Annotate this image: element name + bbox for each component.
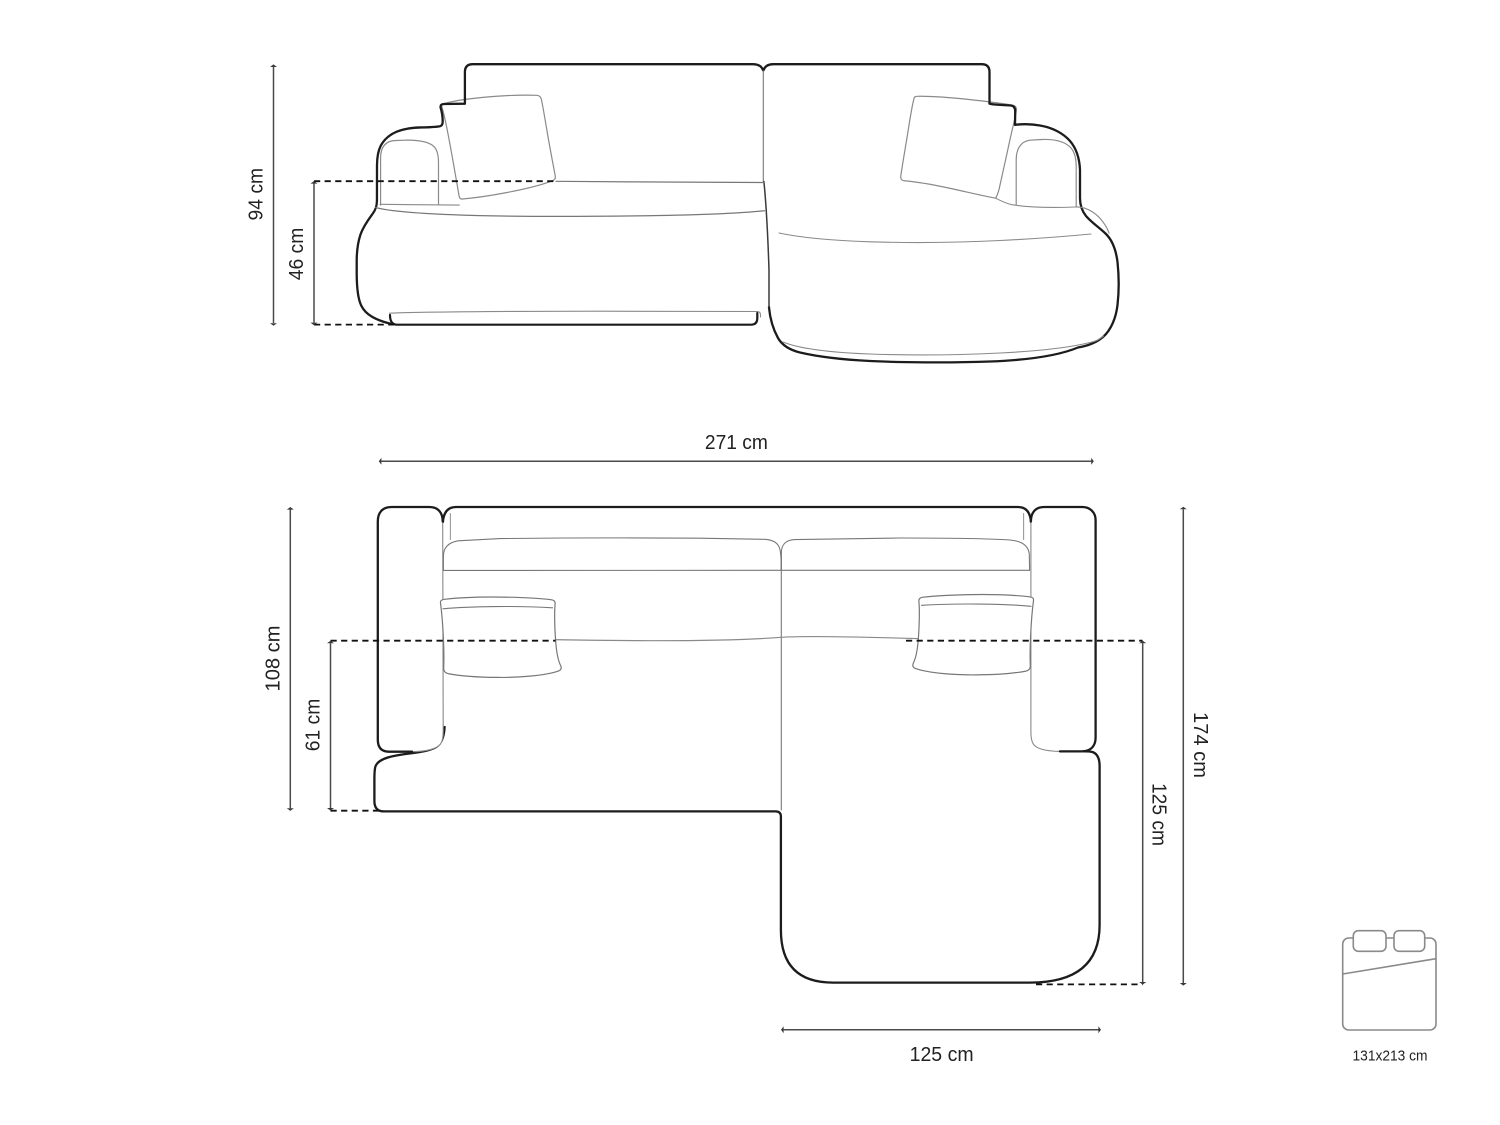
svg-text:94 cm: 94 cm bbox=[245, 168, 268, 221]
svg-text:125 cm: 125 cm bbox=[1148, 783, 1171, 846]
svg-text:271 cm: 271 cm bbox=[705, 431, 768, 454]
svg-text:174 cm: 174 cm bbox=[1189, 712, 1212, 778]
svg-text:108 cm: 108 cm bbox=[262, 626, 285, 692]
svg-text:46 cm: 46 cm bbox=[285, 228, 308, 281]
svg-text:125 cm: 125 cm bbox=[910, 1043, 974, 1066]
svg-text:61 cm: 61 cm bbox=[302, 699, 325, 752]
svg-text:131x213 cm: 131x213 cm bbox=[1353, 1047, 1428, 1064]
